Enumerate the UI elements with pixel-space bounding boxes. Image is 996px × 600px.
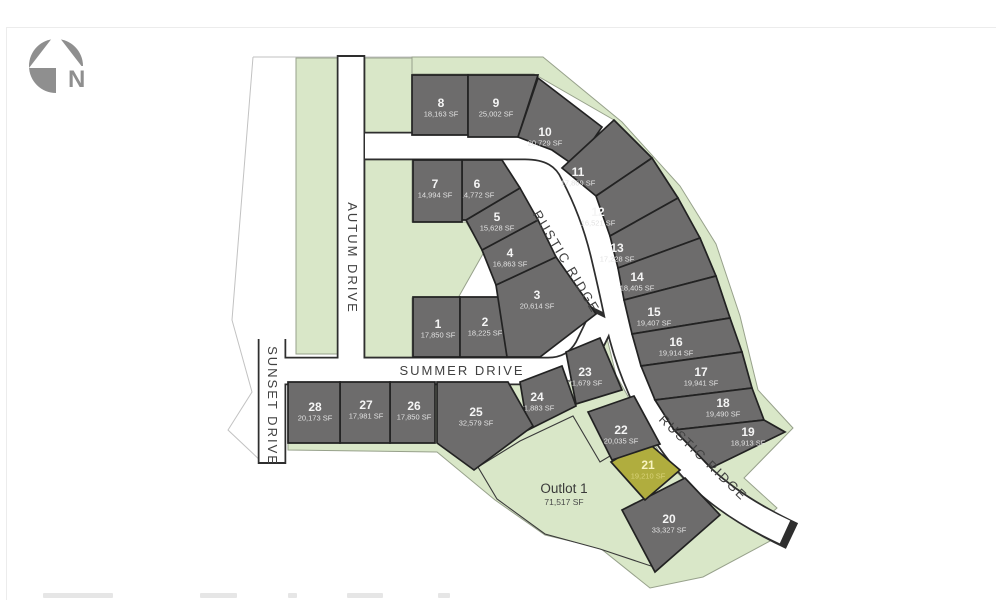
lot-20-number: 20 xyxy=(662,512,676,526)
lot-1: 117,850 SF xyxy=(413,297,460,357)
lot-23-number: 23 xyxy=(578,365,592,379)
lot-9-number: 9 xyxy=(493,96,500,110)
lot-22-area: 20,035 SF xyxy=(604,437,639,446)
lot-3-number: 3 xyxy=(534,288,541,302)
lot-11-number: 11 xyxy=(572,165,585,179)
north-arrow-icon: N xyxy=(29,33,86,96)
lot-28-area: 20,173 SF xyxy=(298,414,333,423)
lot-11-area: 17,869 SF xyxy=(561,179,596,188)
lot-14-number: 14 xyxy=(630,270,644,284)
green-east-of-autum-upper xyxy=(365,58,412,133)
lot-14-area: 18,405 SF xyxy=(620,284,655,293)
lot-8-area: 18,163 SF xyxy=(424,110,459,119)
lot-17-area: 19,941 SF xyxy=(684,379,719,388)
lot-18-area: 19,490 SF xyxy=(706,410,741,419)
lot-25-area: 32,579 SF xyxy=(459,419,494,428)
lot-19-area: 18,913 SF xyxy=(731,439,766,448)
outlot-1-name: Outlot 1 xyxy=(540,481,587,496)
lot-12-area: 16,521 SF xyxy=(581,219,616,228)
lot-19-number: 19 xyxy=(741,425,755,439)
outlot-1-area: 71,517 SF xyxy=(544,497,583,507)
lot-18-number: 18 xyxy=(716,396,730,410)
lot-1-area: 17,850 SF xyxy=(421,331,456,340)
plat-map-svg: Outlot 171,517 SF 117,850 SF218,225 SF32… xyxy=(0,0,996,600)
lot-5-area: 15,628 SF xyxy=(480,224,515,233)
lot-2-number: 2 xyxy=(482,315,489,329)
lot-16-number: 16 xyxy=(669,335,683,349)
lot-10-number: 10 xyxy=(538,125,552,139)
lot-13-number: 13 xyxy=(610,241,624,255)
lot-23-area: 21,679 SF xyxy=(568,379,603,388)
summer-drive-label: SUMMER DRIVE xyxy=(399,363,524,378)
lot-17-number: 17 xyxy=(694,365,708,379)
lot-1-number: 1 xyxy=(435,317,442,331)
green-west-of-autum xyxy=(296,58,338,354)
lot-8-number: 8 xyxy=(438,96,445,110)
lot-3-area: 20,614 SF xyxy=(520,302,555,311)
lot-6-number: 6 xyxy=(474,177,481,191)
lot-13-area: 17,228 SF xyxy=(600,255,635,264)
sunset-drive-label: SUNSET DRIVE xyxy=(265,346,280,466)
lot-26-area: 17,850 SF xyxy=(397,413,432,422)
lot-9-area: 25,002 SF xyxy=(479,110,514,119)
lot-27-number: 27 xyxy=(359,398,373,412)
lot-25-number: 25 xyxy=(469,405,483,419)
lot-8: 818,163 SF xyxy=(412,75,468,135)
autum-drive-label: AUTUM DRIVE xyxy=(345,202,360,314)
lot-15-area: 19,407 SF xyxy=(637,319,672,328)
lot-7-number: 7 xyxy=(432,177,439,191)
lot-10-area: 20,729 SF xyxy=(528,139,563,148)
lot-21-area: 19,210 SF xyxy=(631,472,666,481)
lot-27: 2717,981 SF xyxy=(340,382,390,443)
lot-7: 714,994 SF xyxy=(413,160,462,222)
lot-15-number: 15 xyxy=(647,305,661,319)
lot-16-area: 19,914 SF xyxy=(659,349,694,358)
lot-28: 2820,173 SF xyxy=(288,382,340,443)
lot-7-area: 14,994 SF xyxy=(418,191,453,200)
lot-28-number: 28 xyxy=(308,400,322,414)
lot-2-area: 18,225 SF xyxy=(468,329,503,338)
lot-24-number: 24 xyxy=(530,390,544,404)
lot-4-area: 16,863 SF xyxy=(493,260,528,269)
north-label: N xyxy=(68,66,85,93)
lot-12-number: 12 xyxy=(591,205,605,219)
lot-26: 2617,850 SF xyxy=(390,382,435,443)
lot-5-number: 5 xyxy=(494,210,501,224)
lot-22-number: 22 xyxy=(614,423,628,437)
lot-27-area: 17,981 SF xyxy=(349,412,384,421)
lot-6-area: 14,772 SF xyxy=(460,191,495,200)
lot-26-number: 26 xyxy=(407,399,421,413)
page: { "map": { "north_label": "N", "streets"… xyxy=(0,0,996,600)
lot-4-number: 4 xyxy=(507,246,514,260)
lot-21-number: 21 xyxy=(641,458,655,472)
lot-20-area: 33,327 SF xyxy=(652,526,687,535)
